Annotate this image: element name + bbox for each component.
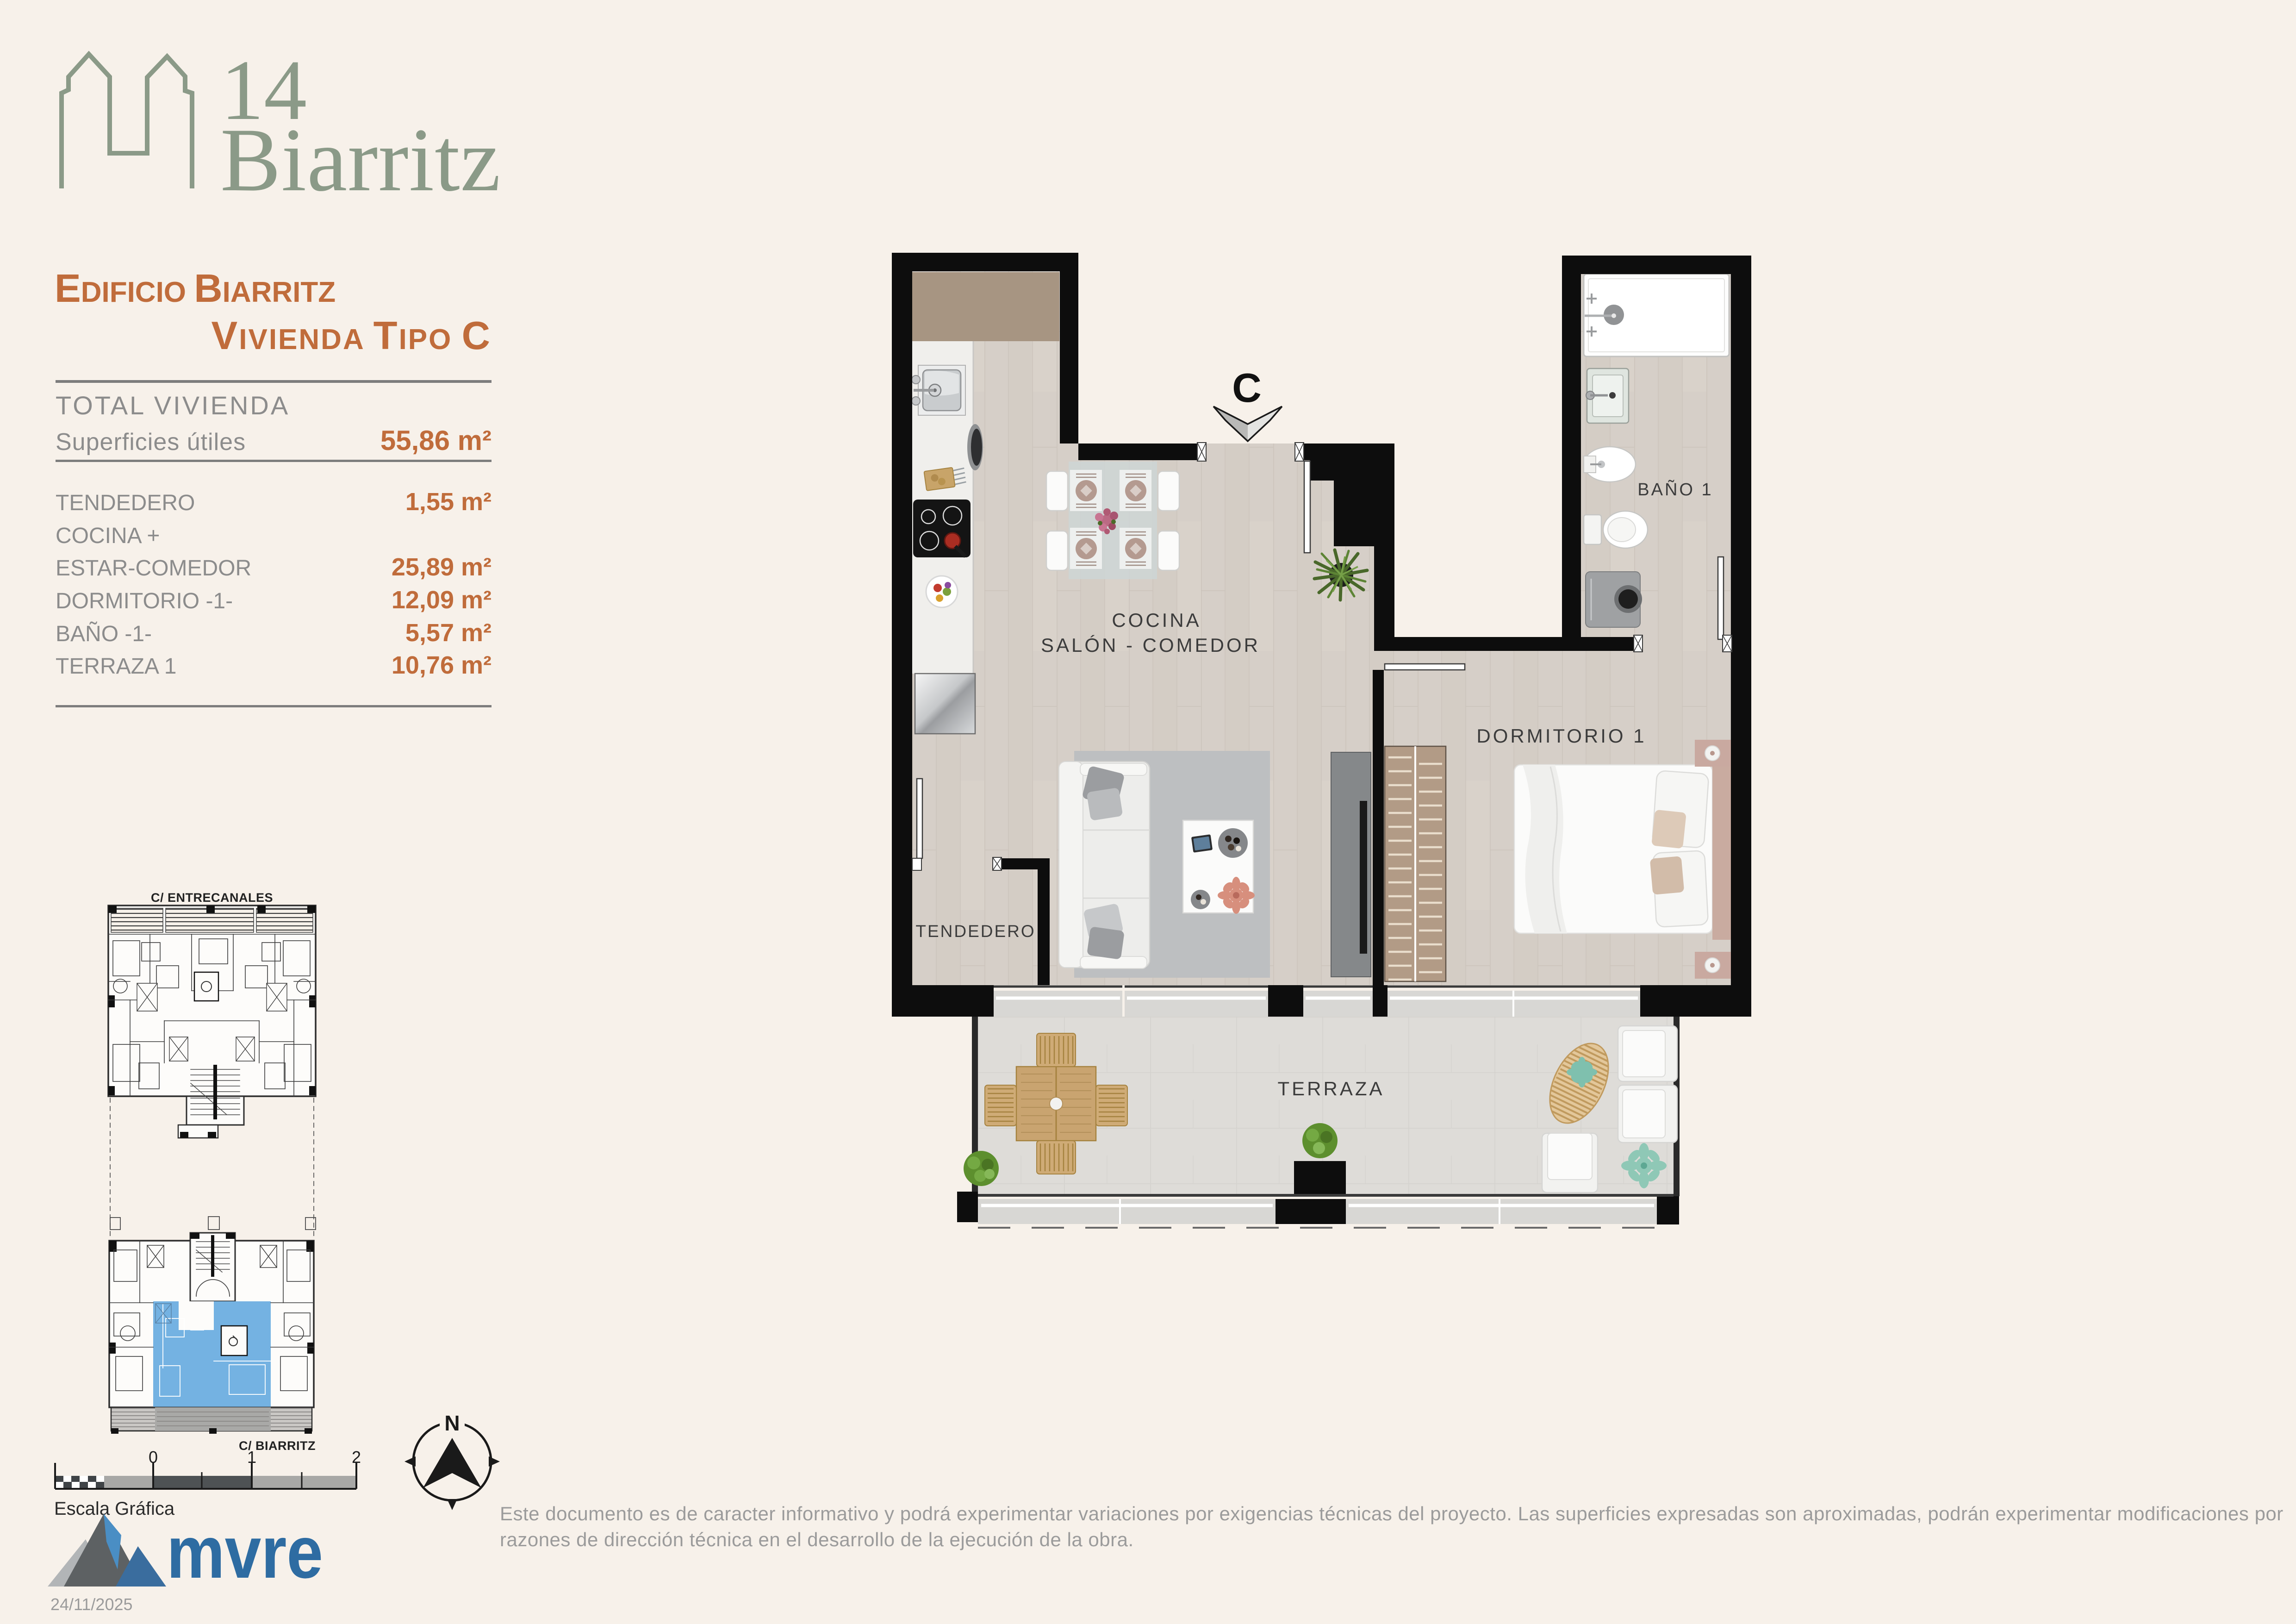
svg-text:Biarritz: Biarritz	[220, 110, 501, 210]
svg-text:5,57 m²: 5,57 m²	[405, 619, 492, 647]
svg-text:Superficies útiles: Superficies útiles	[56, 429, 246, 456]
svg-text:24/11/2025: 24/11/2025	[50, 1595, 133, 1614]
svg-text:BAÑO -1-: BAÑO -1-	[56, 621, 152, 646]
svg-text:TERRAZA 1: TERRAZA 1	[56, 654, 176, 679]
svg-text:Escala Gráfica: Escala Gráfica	[54, 1499, 175, 1519]
svg-text:EDIFICIO BIARRITZ: EDIFICIO BIARRITZ	[55, 267, 336, 311]
svg-text:ESTAR-COMEDOR: ESTAR-COMEDOR	[56, 556, 251, 581]
svg-text:TERRAZA: TERRAZA	[1277, 1078, 1384, 1099]
svg-text:COCINA +: COCINA +	[56, 524, 160, 548]
svg-text:25,89 m²: 25,89 m²	[392, 553, 492, 581]
svg-text:10,76 m²: 10,76 m²	[392, 651, 492, 679]
svg-text:TENDEDERO: TENDEDERO	[56, 491, 195, 515]
svg-text:VIVIENDA TIPO C: VIVIENDA TIPO C	[212, 314, 492, 358]
svg-text:Este documento es de caracter: Este documento es de caracter informativ…	[500, 1503, 2284, 1524]
svg-text:DORMITORIO 1: DORMITORIO 1	[1476, 725, 1646, 747]
svg-text:BAÑO 1: BAÑO 1	[1637, 480, 1713, 500]
svg-text:12,09 m²: 12,09 m²	[392, 586, 492, 614]
svg-text:TOTAL VIVIENDA: TOTAL VIVIENDA	[56, 391, 290, 420]
svg-text:SALÓN - COMEDOR: SALÓN - COMEDOR	[1041, 634, 1260, 656]
svg-text:55,86 m²: 55,86 m²	[380, 425, 492, 456]
svg-text:C: C	[1232, 365, 1262, 411]
svg-text:C/ ENTRECANALES: C/ ENTRECANALES	[151, 891, 273, 905]
svg-text:COCINA: COCINA	[1112, 609, 1201, 631]
svg-text:TENDEDERO: TENDEDERO	[915, 922, 1035, 941]
svg-text:DORMITORIO -1-: DORMITORIO -1-	[56, 589, 233, 613]
svg-text:1,55 m²: 1,55 m²	[405, 488, 492, 516]
svg-text:mvre: mvre	[167, 1511, 323, 1593]
svg-text:N: N	[444, 1411, 460, 1435]
svg-text:razones de dirección técnica e: razones de dirección técnica en el desar…	[500, 1529, 1134, 1550]
